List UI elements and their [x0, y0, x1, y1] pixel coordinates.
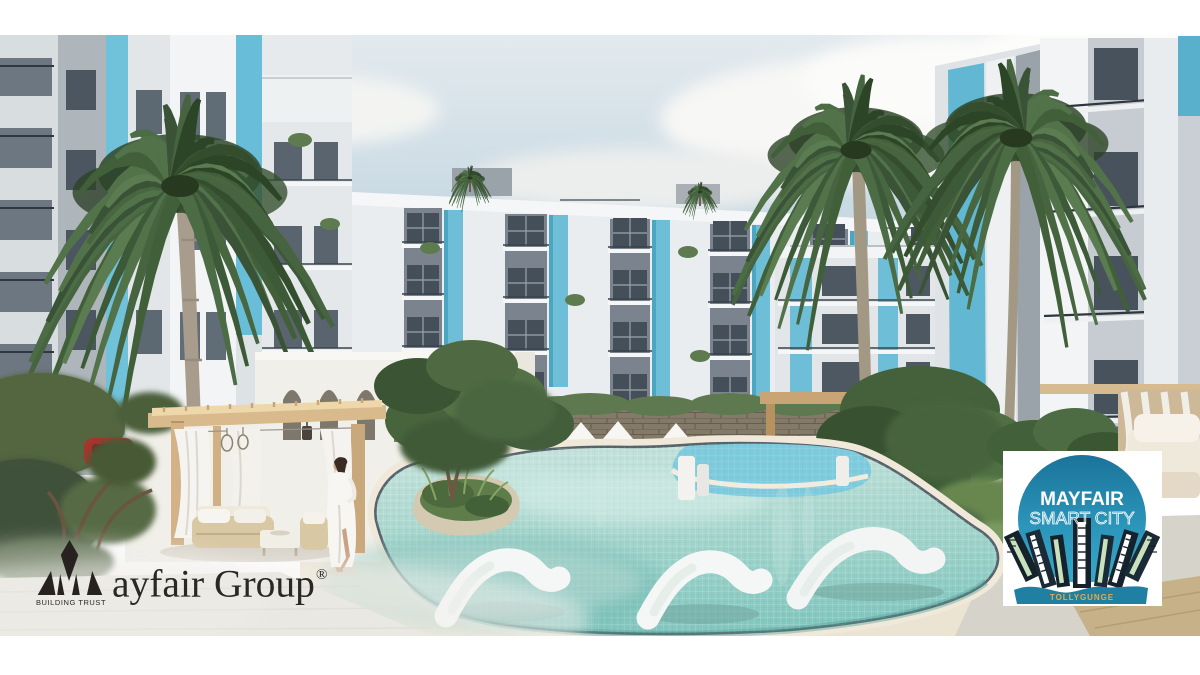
svg-text:BUILDING TRUST: BUILDING TRUST — [36, 598, 106, 607]
svg-text:TOLLYGUNGE: TOLLYGUNGE — [1050, 593, 1114, 602]
svg-text:MAYFAIR: MAYFAIR — [1040, 489, 1124, 510]
svg-text:ayfair Group: ayfair Group — [112, 562, 315, 606]
svg-text:SMART CITY: SMART CITY — [1029, 508, 1135, 528]
svg-text:®: ® — [316, 567, 327, 583]
